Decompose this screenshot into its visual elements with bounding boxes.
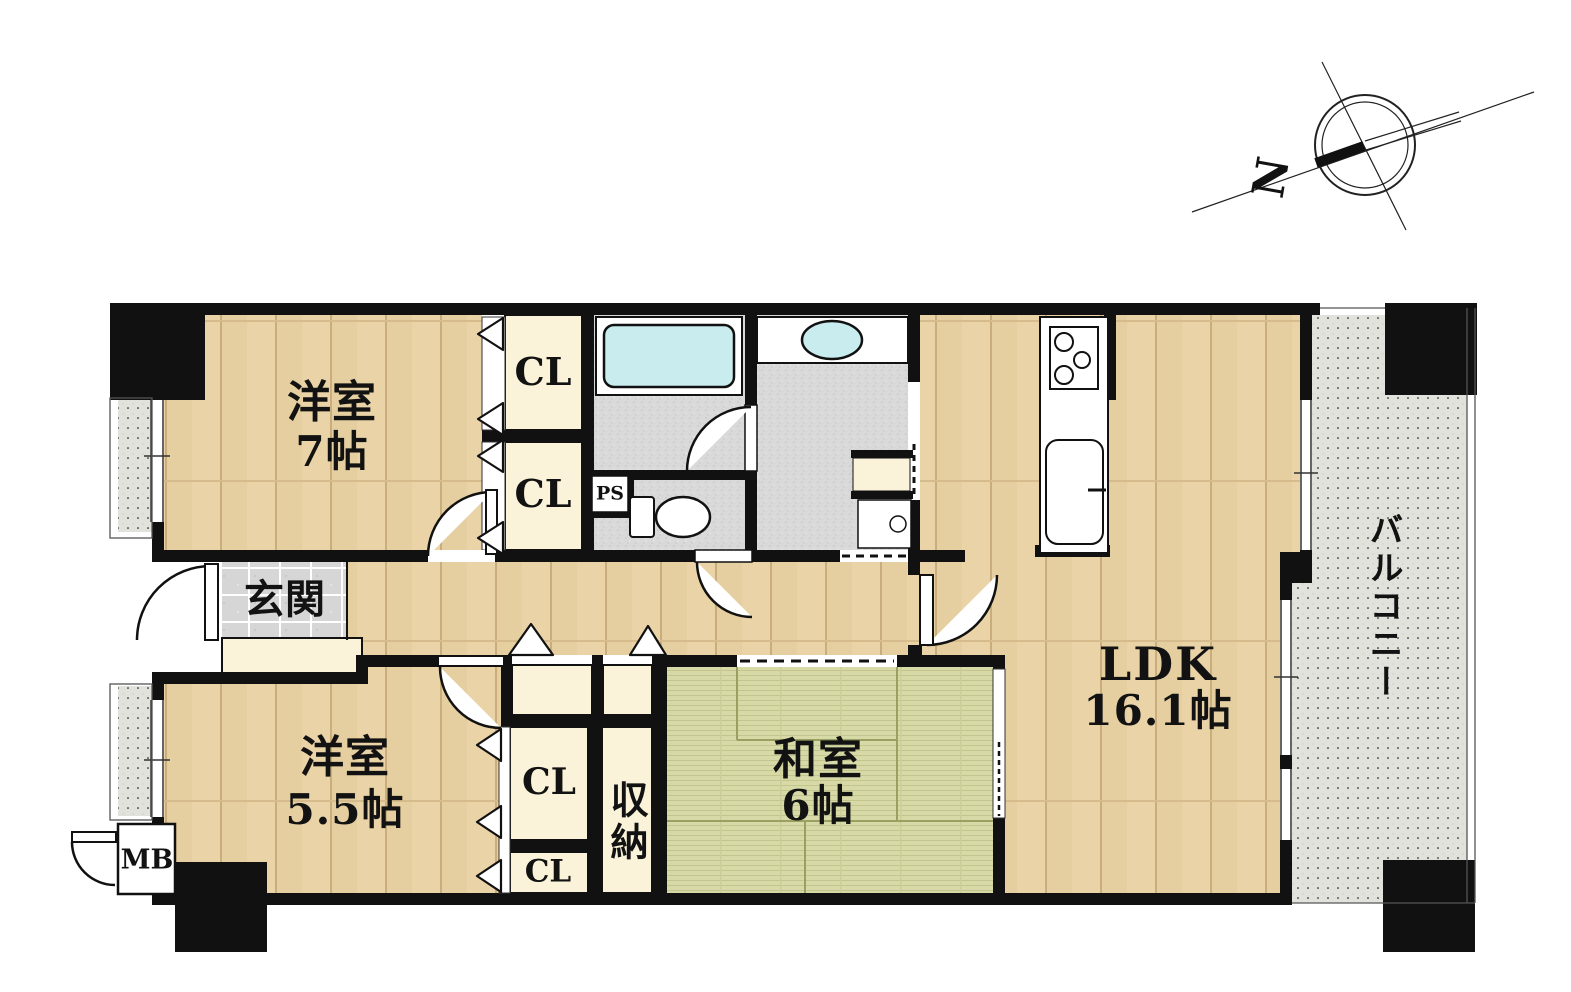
closet-label-cl3: CL (522, 764, 576, 800)
toilet-bowl (656, 497, 710, 537)
pipe-space-label: PS (596, 485, 624, 504)
room-label-balcony: バルコニー (1366, 512, 1400, 702)
compass-icon (1192, 62, 1534, 230)
room-label-western55-name: 洋室 (300, 736, 390, 780)
toilet-tank (630, 497, 654, 537)
room-label-japanese6-size: 6帖 (781, 785, 854, 827)
closet-label-cl4: CL (525, 857, 571, 888)
room-label-japanese6-name: 和室 (773, 738, 863, 782)
room-label-ldk-size: 16.1帖 (1083, 690, 1232, 732)
room-label-ldk-name: LDK (1099, 641, 1217, 687)
room-label-entrance: 玄関 (244, 580, 326, 620)
room-label-western7-name: 洋室 (287, 381, 377, 425)
meter-box-label: MB (121, 847, 174, 874)
room-label-western55-size: 5.5帖 (285, 789, 404, 831)
compass-north-label: N (1247, 153, 1297, 201)
room-label-storage: 収納 (607, 780, 645, 864)
floor-plan: 洋室 7帖 CL CL PS 玄関 洋室 5.5帖 CL CL 収納 和室 6帖… (0, 0, 1571, 992)
closet-label-cl1: CL (515, 353, 572, 391)
floor-plan-drawing (0, 0, 1571, 992)
room-label-western7-size: 7帖 (295, 431, 368, 473)
closet-label-cl2: CL (515, 475, 572, 513)
vanity-sink (802, 321, 862, 359)
kitchen-sink (1046, 440, 1103, 544)
bathtub (604, 325, 734, 387)
linen-cabinet (853, 458, 910, 491)
